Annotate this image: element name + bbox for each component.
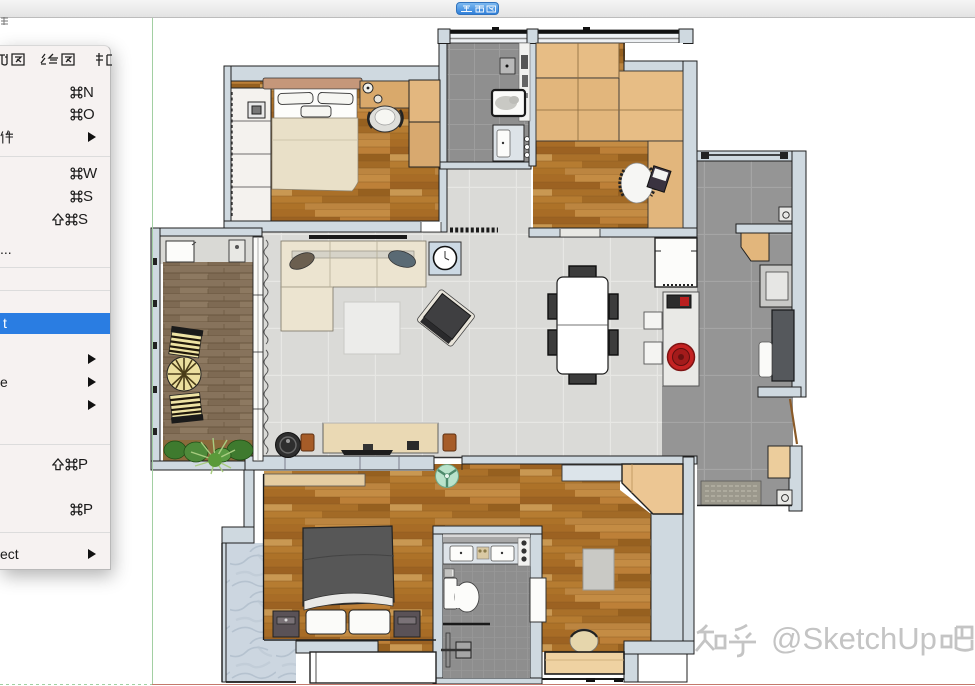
svg-text:@SketchUp: @SketchUp (771, 621, 937, 656)
